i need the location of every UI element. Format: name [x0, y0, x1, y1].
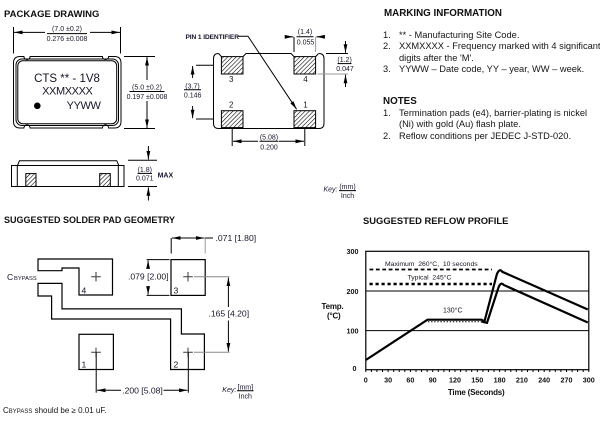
svg-text:150: 150	[471, 375, 483, 384]
svg-text:(1.4): (1.4)	[298, 29, 312, 36]
svg-text:3: 3	[229, 75, 234, 84]
svg-text:270: 270	[561, 375, 573, 384]
svg-text:C: C	[7, 272, 13, 282]
svg-text:0: 0	[364, 375, 368, 384]
svg-text:130°C: 130°C	[443, 306, 463, 314]
svg-text:Key:: Key:	[222, 387, 236, 394]
svg-text:.165 [4.20]: .165 [4.20]	[208, 308, 249, 318]
svg-text:(7.0 ±0.2): (7.0 ±0.2)	[52, 26, 82, 33]
svg-text:YYWW: YYWW	[67, 100, 102, 112]
svg-text:0.071: 0.071	[136, 175, 154, 182]
svg-text:300: 300	[347, 247, 359, 256]
svg-text:(°C): (°C)	[327, 312, 341, 321]
svg-text:.079 [2.00]: .079 [2.00]	[128, 272, 169, 282]
svg-text:Maximum 260°C, 10 seconds: Maximum 260°C, 10 seconds	[385, 260, 478, 268]
svg-text:200: 200	[347, 287, 359, 296]
svg-text:Temp.: Temp.	[322, 302, 344, 311]
svg-text:0.047: 0.047	[336, 66, 354, 73]
svg-text:30: 30	[384, 375, 392, 384]
svg-text:(3.7): (3.7)	[185, 83, 199, 90]
svg-text:0.276 ±0.008: 0.276 ±0.008	[47, 36, 88, 43]
svg-text:300: 300	[583, 375, 595, 384]
svg-text:2: 2	[174, 360, 179, 370]
svg-text:.071 [1.80]: .071 [1.80]	[216, 233, 257, 243]
svg-text:0.146: 0.146	[184, 92, 202, 99]
svg-text:Inch: Inch	[239, 393, 252, 400]
svg-text:(5.0 ±0.2): (5.0 ±0.2)	[132, 85, 162, 92]
svg-text:4: 4	[303, 75, 308, 84]
svg-text:4: 4	[82, 285, 87, 295]
svg-text:.200 [5.08]: .200 [5.08]	[122, 385, 163, 395]
svg-text:[mm]: [mm]	[238, 384, 254, 391]
svg-text:BYPASS: BYPASS	[14, 276, 37, 282]
svg-text:3: 3	[174, 285, 179, 295]
svg-text:Time (Seconds): Time (Seconds)	[448, 388, 505, 397]
svg-text:2: 2	[229, 100, 234, 109]
svg-text:180: 180	[494, 375, 506, 384]
svg-text:XXMXXXX: XXMXXXX	[42, 86, 93, 98]
svg-text:1: 1	[303, 100, 308, 109]
svg-text:Inch: Inch	[341, 193, 354, 200]
svg-text:210: 210	[516, 375, 528, 384]
svg-text:CTS ** - 1V8: CTS ** - 1V8	[34, 73, 100, 85]
svg-text:0.055: 0.055	[297, 40, 315, 47]
svg-text:0.200: 0.200	[260, 144, 278, 151]
svg-text:Key:: Key:	[324, 187, 338, 194]
svg-text:MAX: MAX	[158, 172, 174, 179]
svg-text:0: 0	[353, 364, 357, 373]
svg-text:240: 240	[538, 375, 550, 384]
svg-text:(mm): (mm)	[339, 184, 355, 191]
svg-text:1: 1	[82, 360, 87, 370]
svg-text:0.197 ±0.008: 0.197 ±0.008	[127, 94, 168, 101]
svg-text:Typical 245°C: Typical 245°C	[408, 274, 452, 282]
svg-text:(5.08): (5.08)	[260, 134, 278, 141]
svg-text:120: 120	[449, 375, 461, 384]
svg-text:90: 90	[429, 375, 437, 384]
svg-text:60: 60	[406, 375, 414, 384]
svg-text:100: 100	[347, 327, 359, 336]
svg-text:PIN 1 IDENTIFIER: PIN 1 IDENTIFIER	[186, 34, 240, 41]
